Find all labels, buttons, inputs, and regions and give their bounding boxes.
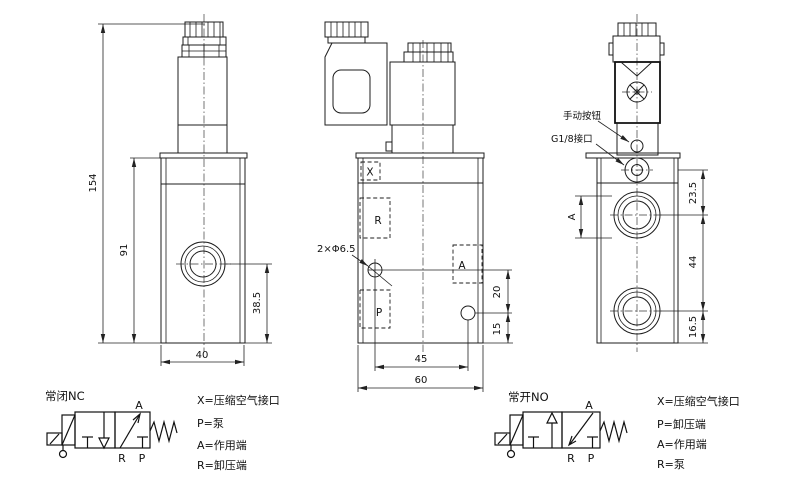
front-centerline [176, 14, 231, 352]
g18-label: G1/8接口 [551, 133, 593, 145]
side-view: X R A P 2×Φ6.5 45 60 20 15 [317, 22, 513, 392]
nc-port-a: A [135, 399, 143, 412]
legend-no: X=压缩空气接口 P=卸压端 A=作用端 R=泵 [657, 394, 740, 471]
front-dimensions: 154 91 38.5 40 [88, 24, 272, 366]
mount-holes-label: 2×Φ6.5 [317, 244, 356, 255]
nc-port-r: R [118, 452, 126, 465]
dim-side-width: 60 [415, 375, 428, 386]
legend-no-item-p: P=卸压端 [657, 417, 706, 431]
no-port-r: R [567, 452, 575, 465]
schematic-nc-title: 常闭NC [45, 389, 85, 403]
legend-nc-item-p: P=泵 [197, 417, 224, 430]
front-view: 154 91 38.5 40 [88, 14, 272, 366]
legend-no-item-x: X=压缩空气接口 [657, 394, 740, 408]
schematic-no: 常开NO A R P [495, 390, 627, 465]
legend-nc-item-a: A=作用端 [197, 439, 247, 452]
nc-solenoid-symbol [47, 415, 75, 458]
legend-nc: X=压缩空气接口 P=泵 A=作用端 R=卸压端 [197, 393, 280, 472]
front-solenoid [178, 22, 227, 153]
side-valve-body: X R A P [356, 153, 512, 343]
dim-lower: 15 [492, 323, 503, 336]
nc-manual-override-icon [60, 451, 67, 458]
dim-body-height: 91 [119, 244, 130, 257]
legend-nc-item-r: R=卸压端 [197, 458, 247, 472]
schematic-no-title: 常开NO [508, 390, 549, 404]
dim-upper: 20 [492, 286, 503, 299]
front-valve-body [160, 153, 247, 343]
drawing-sheet: 154 91 38.5 40 [0, 0, 800, 479]
dim-bottom: 16.5 [688, 316, 699, 338]
no-port-a: A [585, 399, 593, 412]
nc-spring-icon [150, 422, 177, 441]
end-valve-body [586, 153, 680, 343]
port-label-r: R [374, 215, 381, 227]
no-port-p: P [588, 452, 595, 465]
no-manual-override-icon [508, 451, 515, 458]
port-a-dim-label: A [567, 213, 578, 220]
dim-total-height: 154 [88, 173, 99, 192]
dim-top: 23.5 [688, 182, 699, 204]
end-view: 手动按钮 G1/8接口 A 23.5 44 16.5 [551, 14, 708, 352]
legend-no-item-a: A=作用端 [657, 438, 707, 451]
dim-width: 40 [196, 350, 209, 361]
manual-button-label: 手动按钮 [563, 110, 602, 122]
side-din-connector [325, 22, 387, 125]
legend-nc-item-x: X=压缩空气接口 [197, 393, 280, 407]
end-solenoid [609, 23, 664, 155]
legend-no-item-r: R=泵 [657, 458, 685, 471]
side-coil [386, 43, 455, 153]
dim-hole-spacing: 45 [415, 354, 428, 365]
no-solenoid-symbol [495, 415, 523, 458]
port-label-x: X [366, 167, 373, 179]
mount-hole-right [461, 306, 475, 320]
dim-mid: 44 [688, 256, 699, 269]
no-spring-icon [600, 422, 627, 441]
port-label-p: P [376, 307, 382, 319]
dim-port-height: 38.5 [252, 292, 263, 314]
side-dimensions: 45 60 20 15 [358, 259, 513, 392]
side-hole-callout: 2×Φ6.5 [317, 244, 392, 286]
no-flow-paths [528, 413, 598, 448]
schematic-nc: 常闭NC A R P [45, 389, 177, 465]
nc-port-p: P [139, 452, 146, 465]
